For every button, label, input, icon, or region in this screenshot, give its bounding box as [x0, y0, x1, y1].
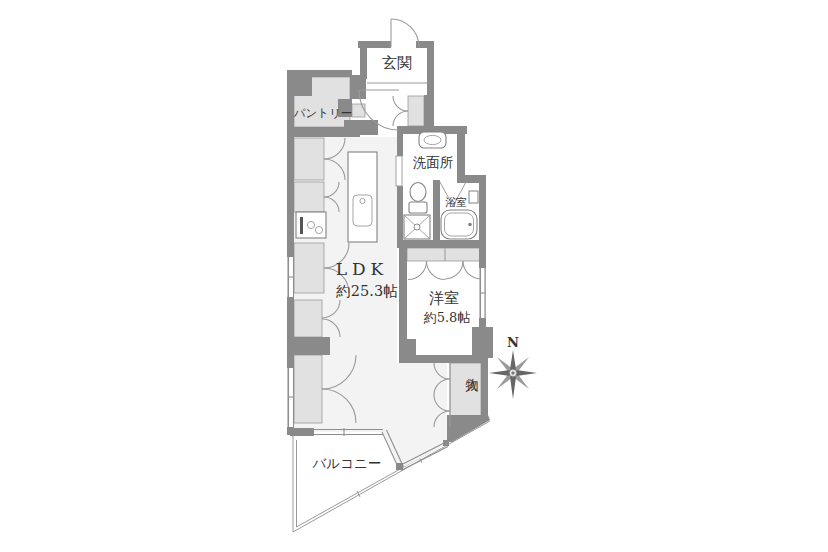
- floor-plan-page: 玄関 パントリー 洗面所 浴室 LDK 約25.3帖 洋室 約5.8帖 物入 バ…: [0, 0, 828, 552]
- laundry-pan: [404, 215, 430, 239]
- kitchen-island: [348, 152, 377, 242]
- window-mullion-post-2: [443, 440, 449, 446]
- washroom-sliding-door: [396, 156, 402, 186]
- wall-washroom-left-lower: [397, 186, 403, 247]
- wall-bathroom-right: [479, 175, 486, 247]
- bathroom-label: 浴室: [445, 196, 467, 209]
- western-room-closet: [407, 248, 481, 261]
- wall-east-pier: [472, 327, 493, 358]
- washroom-label: 洗面所: [413, 154, 454, 170]
- compass-north-label: N: [507, 335, 519, 350]
- ldk-label: LDK: [336, 259, 389, 279]
- wall-pantry-hall-column: [350, 75, 366, 99]
- wall-storage-right: [481, 363, 488, 420]
- wall-genkan-right: [427, 41, 434, 103]
- balcony-label: バルコニー: [312, 455, 382, 471]
- window-western-room-east: [480, 268, 486, 318]
- toilet: [409, 183, 427, 214]
- bath-control-panel: [469, 191, 478, 203]
- wall-western-room-top: [397, 240, 486, 248]
- ldk-size-label: 約25.3帖: [335, 283, 397, 299]
- wall-west-mid-band: [294, 337, 330, 355]
- closet-b: [294, 182, 324, 212]
- western-room-label: 洋室: [429, 289, 459, 307]
- wall-genkan-left: [360, 41, 367, 79]
- genkan-label: 玄関: [382, 54, 412, 72]
- closet-a: [294, 138, 324, 180]
- wall-hall-bottom: [344, 120, 378, 135]
- western-room-size-label: 約5.8帖: [423, 310, 471, 325]
- pantry-label: パントリー: [293, 106, 353, 120]
- shoe-cabinet: [408, 96, 424, 126]
- wall-bathroom-left: [433, 180, 440, 247]
- stove-grill-icon: [300, 217, 303, 234]
- storage-area: [450, 363, 481, 416]
- washbasin: [419, 132, 446, 148]
- closet-c: [294, 243, 324, 293]
- bathtub: [441, 210, 477, 239]
- wall-western-room-bottom: [399, 355, 488, 363]
- stove-counter: [296, 212, 326, 238]
- wall-washroom-right: [457, 126, 465, 182]
- closet-d: [294, 300, 322, 337]
- wall-ldk-bottom-left: [290, 428, 314, 436]
- utility-box-1: [352, 104, 365, 117]
- wall-shoe-cabinet-right: [424, 95, 434, 126]
- floor-plan-svg: 玄関 パントリー 洗面所 浴室 LDK 約25.3帖 洋室 約5.8帖 物入 バ…: [0, 0, 828, 552]
- window-mullion-post-1: [396, 463, 403, 470]
- closet-e: [294, 355, 322, 423]
